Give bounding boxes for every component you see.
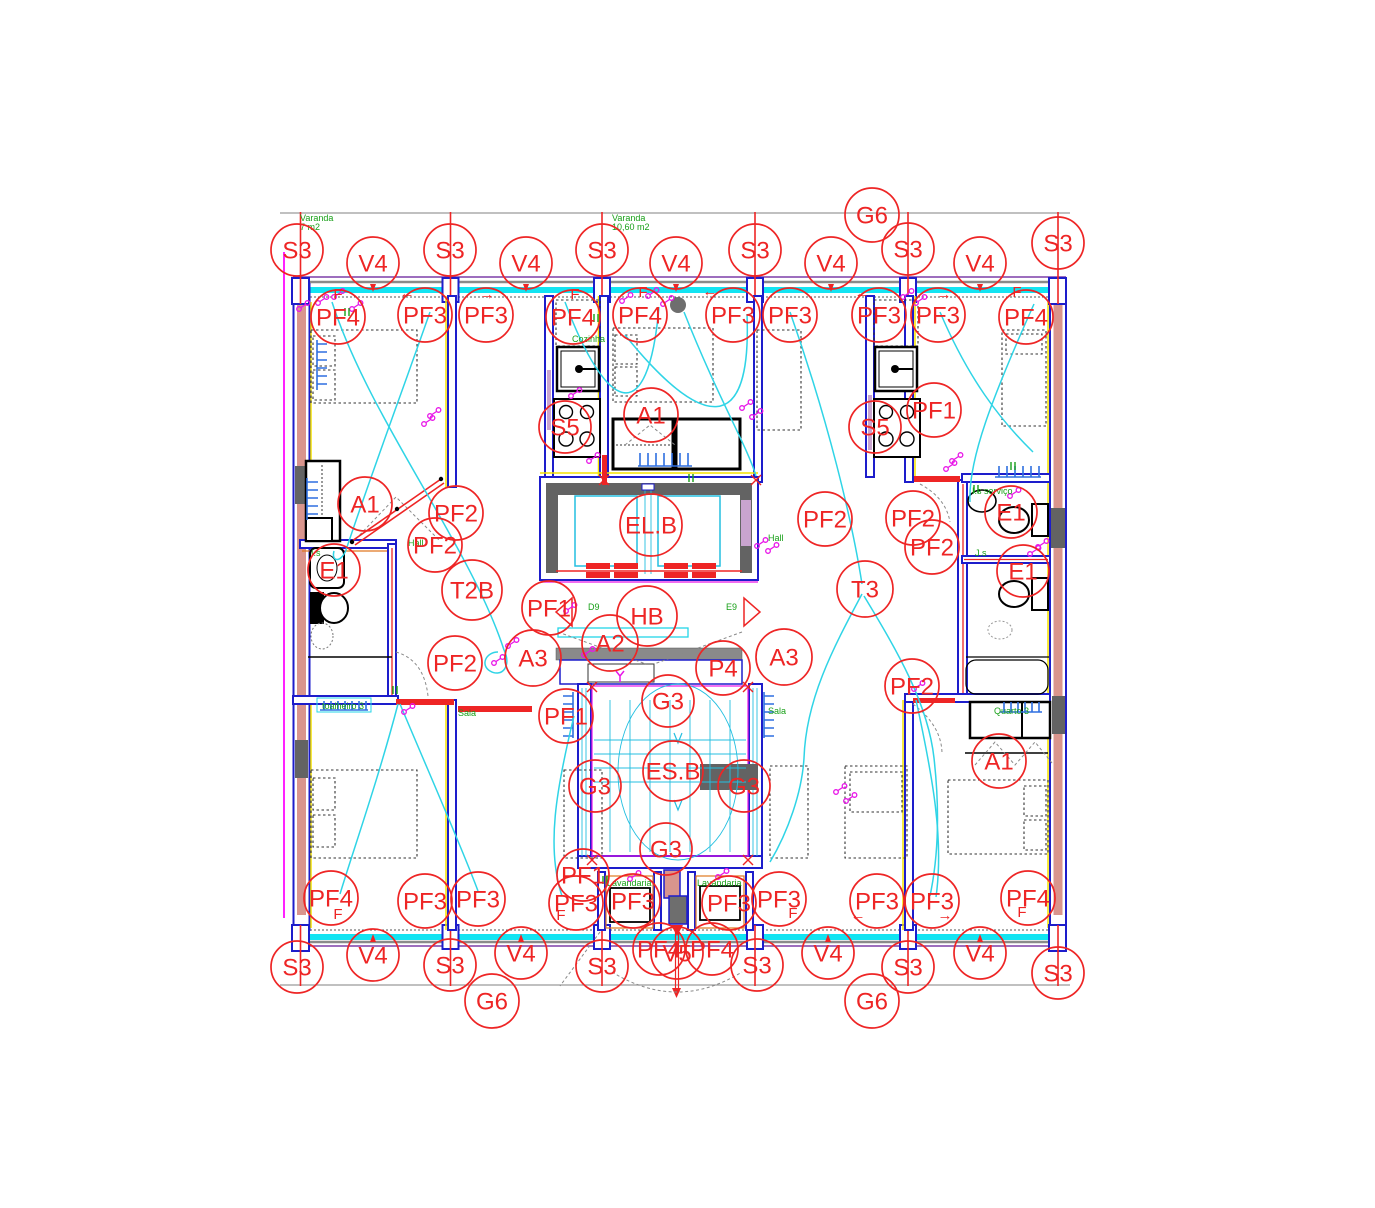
svg-text:G3: G3 bbox=[579, 774, 611, 801]
svg-text:S3: S3 bbox=[742, 953, 771, 980]
marker-g6: G6 bbox=[845, 188, 899, 242]
svg-text:PF3: PF3 bbox=[403, 303, 447, 330]
interior-walls bbox=[293, 296, 1050, 930]
svg-text:PF2: PF2 bbox=[413, 533, 457, 560]
room-label: Sala bbox=[768, 706, 786, 716]
room-label: D9 bbox=[588, 602, 600, 612]
svg-text:PF3: PF3 bbox=[855, 889, 899, 916]
svg-text:S3: S3 bbox=[282, 238, 311, 265]
svg-text:V4: V4 bbox=[813, 941, 842, 968]
marker-pf3: PF3 bbox=[752, 872, 806, 926]
marker-pf1: PF1 bbox=[907, 383, 961, 437]
svg-text:A1: A1 bbox=[350, 492, 379, 519]
svg-text:PF4: PF4 bbox=[309, 886, 353, 913]
fixed-mark: F bbox=[333, 286, 342, 303]
symbols-layer bbox=[297, 288, 1049, 884]
marker-pf4: PF4 bbox=[686, 923, 738, 975]
svg-text:S5: S5 bbox=[550, 415, 579, 442]
svg-text:V4: V4 bbox=[816, 251, 845, 278]
marker-pf2: PF2 bbox=[798, 492, 852, 546]
fixed-mark: F bbox=[638, 284, 647, 301]
wiring bbox=[332, 302, 1034, 897]
svg-text:PF3: PF3 bbox=[857, 303, 901, 330]
svg-text:PF1: PF1 bbox=[912, 398, 956, 425]
svg-text:PF3: PF3 bbox=[464, 303, 508, 330]
room-label: Sala bbox=[458, 708, 476, 718]
svg-text:G6: G6 bbox=[856, 989, 888, 1016]
marker-a1: A1 bbox=[338, 477, 392, 531]
marker-a3: A3 bbox=[505, 630, 561, 686]
svg-text:G3: G3 bbox=[728, 774, 760, 801]
svg-text:E1: E1 bbox=[996, 500, 1025, 527]
direction-arrow: ← bbox=[703, 283, 718, 300]
svg-text:A3: A3 bbox=[518, 646, 547, 673]
svg-text:PF3: PF3 bbox=[711, 303, 755, 330]
svg-text:V4: V4 bbox=[965, 941, 994, 968]
svg-text:V4: V4 bbox=[965, 251, 994, 278]
marker-pf3: PF3 bbox=[706, 288, 760, 342]
svg-text:PF2: PF2 bbox=[910, 535, 954, 562]
marker-pf1: PF1 bbox=[522, 581, 576, 635]
marker-pf4: PF4 bbox=[999, 290, 1053, 344]
svg-text:PF3: PF3 bbox=[757, 887, 801, 914]
svg-text:A3: A3 bbox=[769, 645, 798, 672]
switch-symbol bbox=[492, 655, 505, 666]
svg-text:PF3: PF3 bbox=[403, 889, 447, 916]
svg-text:G3: G3 bbox=[652, 689, 684, 716]
svg-text:S3: S3 bbox=[435, 238, 464, 265]
svg-text:PF4: PF4 bbox=[1004, 305, 1048, 332]
svg-text:V4: V4 bbox=[511, 251, 540, 278]
room-label: Lavandaria bbox=[697, 878, 742, 888]
room-label: Hall bbox=[768, 533, 784, 543]
room-label: E9 bbox=[726, 602, 737, 612]
svg-text:G3: G3 bbox=[650, 837, 682, 864]
svg-text:S3: S3 bbox=[1043, 961, 1072, 988]
svg-text:E1: E1 bbox=[1008, 559, 1037, 586]
svg-text:G6: G6 bbox=[476, 989, 508, 1016]
svg-text:PF4: PF4 bbox=[1006, 886, 1050, 913]
marker-a3: A3 bbox=[756, 629, 812, 685]
marker-pf3: PF3 bbox=[451, 872, 505, 926]
floor-plan-drawing: Varanda7 m2Varanda10,60 m2CozinhaHallHal… bbox=[0, 0, 1375, 1208]
room-label: 10,60 m2 bbox=[612, 222, 650, 232]
svg-text:PF2: PF2 bbox=[434, 501, 478, 528]
svg-text:S5: S5 bbox=[860, 415, 889, 442]
marker-t3: T3 bbox=[837, 561, 893, 617]
marker-pf4: PF4 bbox=[1001, 871, 1055, 925]
direction-arrow: ← bbox=[400, 285, 415, 302]
marker-g6: G6 bbox=[845, 974, 899, 1028]
svg-text:PF2: PF2 bbox=[890, 674, 934, 701]
room-label: toalheiro 3 bbox=[322, 701, 364, 711]
switch-symbol bbox=[1036, 539, 1049, 550]
svg-text:PF3: PF3 bbox=[611, 889, 655, 916]
svg-text:S3: S3 bbox=[893, 955, 922, 982]
marker-t2b: T2B bbox=[442, 560, 502, 620]
svg-text:PF3: PF3 bbox=[456, 887, 500, 914]
marker-pf3: PF3 bbox=[398, 288, 452, 342]
svg-text:V4: V4 bbox=[661, 251, 690, 278]
svg-text:V4: V4 bbox=[358, 251, 387, 278]
svg-text:V4: V4 bbox=[506, 941, 535, 968]
svg-text:PF1: PF1 bbox=[527, 596, 571, 623]
switch-symbol bbox=[766, 543, 779, 554]
svg-text:PF3: PF3 bbox=[910, 889, 954, 916]
svg-text:PF3: PF3 bbox=[554, 891, 598, 918]
marker-pf1: PF1 bbox=[539, 689, 593, 743]
svg-text:EL.B: EL.B bbox=[625, 513, 677, 540]
outer-walls bbox=[294, 284, 1067, 930]
marker-s3: S3 bbox=[271, 224, 323, 276]
svg-text:A1: A1 bbox=[984, 749, 1013, 776]
marker-g6: G6 bbox=[465, 974, 519, 1028]
svg-text:S3: S3 bbox=[587, 238, 616, 265]
svg-text:PF4: PF4 bbox=[551, 305, 595, 332]
svg-text:S3: S3 bbox=[740, 238, 769, 265]
svg-text:PF2: PF2 bbox=[803, 507, 847, 534]
svg-text:PF2: PF2 bbox=[433, 651, 477, 678]
svg-text:PF3: PF3 bbox=[916, 303, 960, 330]
floor-plan-stage: Varanda7 m2Varanda10,60 m2CozinhaHallHal… bbox=[0, 0, 1375, 1208]
marker-pf3: PF3 bbox=[763, 288, 817, 342]
svg-text:S3: S3 bbox=[587, 954, 616, 981]
room-label: Quarto 3 bbox=[994, 706, 1029, 716]
switch-symbol bbox=[740, 400, 753, 411]
marker-pf3: PF3 bbox=[398, 874, 452, 928]
svg-text:A2: A2 bbox=[595, 631, 624, 658]
svg-text:T2B: T2B bbox=[450, 578, 494, 605]
svg-text:PF4: PF4 bbox=[690, 937, 734, 964]
fixed-mark: F bbox=[570, 286, 579, 303]
svg-text:E1: E1 bbox=[319, 558, 348, 585]
svg-text:PF3: PF3 bbox=[707, 891, 751, 918]
svg-text:PF4: PF4 bbox=[618, 303, 662, 330]
marker-pf4: PF4 bbox=[304, 871, 358, 925]
svg-text:PF1: PF1 bbox=[544, 704, 588, 731]
svg-text:PF3: PF3 bbox=[768, 303, 812, 330]
svg-text:G6: G6 bbox=[856, 203, 888, 230]
svg-text:ES.B: ES.B bbox=[646, 759, 701, 786]
marker-es-b: ES.B bbox=[643, 741, 703, 801]
marker-pf2: PF2 bbox=[428, 636, 482, 690]
svg-text:S3: S3 bbox=[435, 953, 464, 980]
svg-text:T3: T3 bbox=[851, 577, 879, 604]
svg-text:P4: P4 bbox=[708, 656, 737, 683]
svg-text:A1: A1 bbox=[636, 403, 665, 430]
svg-text:HB: HB bbox=[630, 604, 663, 631]
marker-pf3: PF3 bbox=[850, 874, 904, 928]
room-label: J.s bbox=[975, 548, 987, 558]
svg-text:S3: S3 bbox=[893, 237, 922, 264]
socket-symbol bbox=[1011, 462, 1015, 470]
svg-text:S3: S3 bbox=[1043, 231, 1072, 258]
marker-pf3: PF3 bbox=[852, 288, 906, 342]
svg-text:V4: V4 bbox=[358, 943, 387, 970]
svg-text:PF4: PF4 bbox=[316, 305, 360, 332]
svg-text:PF1: PF1 bbox=[561, 863, 605, 890]
svg-text:S3: S3 bbox=[282, 955, 311, 982]
